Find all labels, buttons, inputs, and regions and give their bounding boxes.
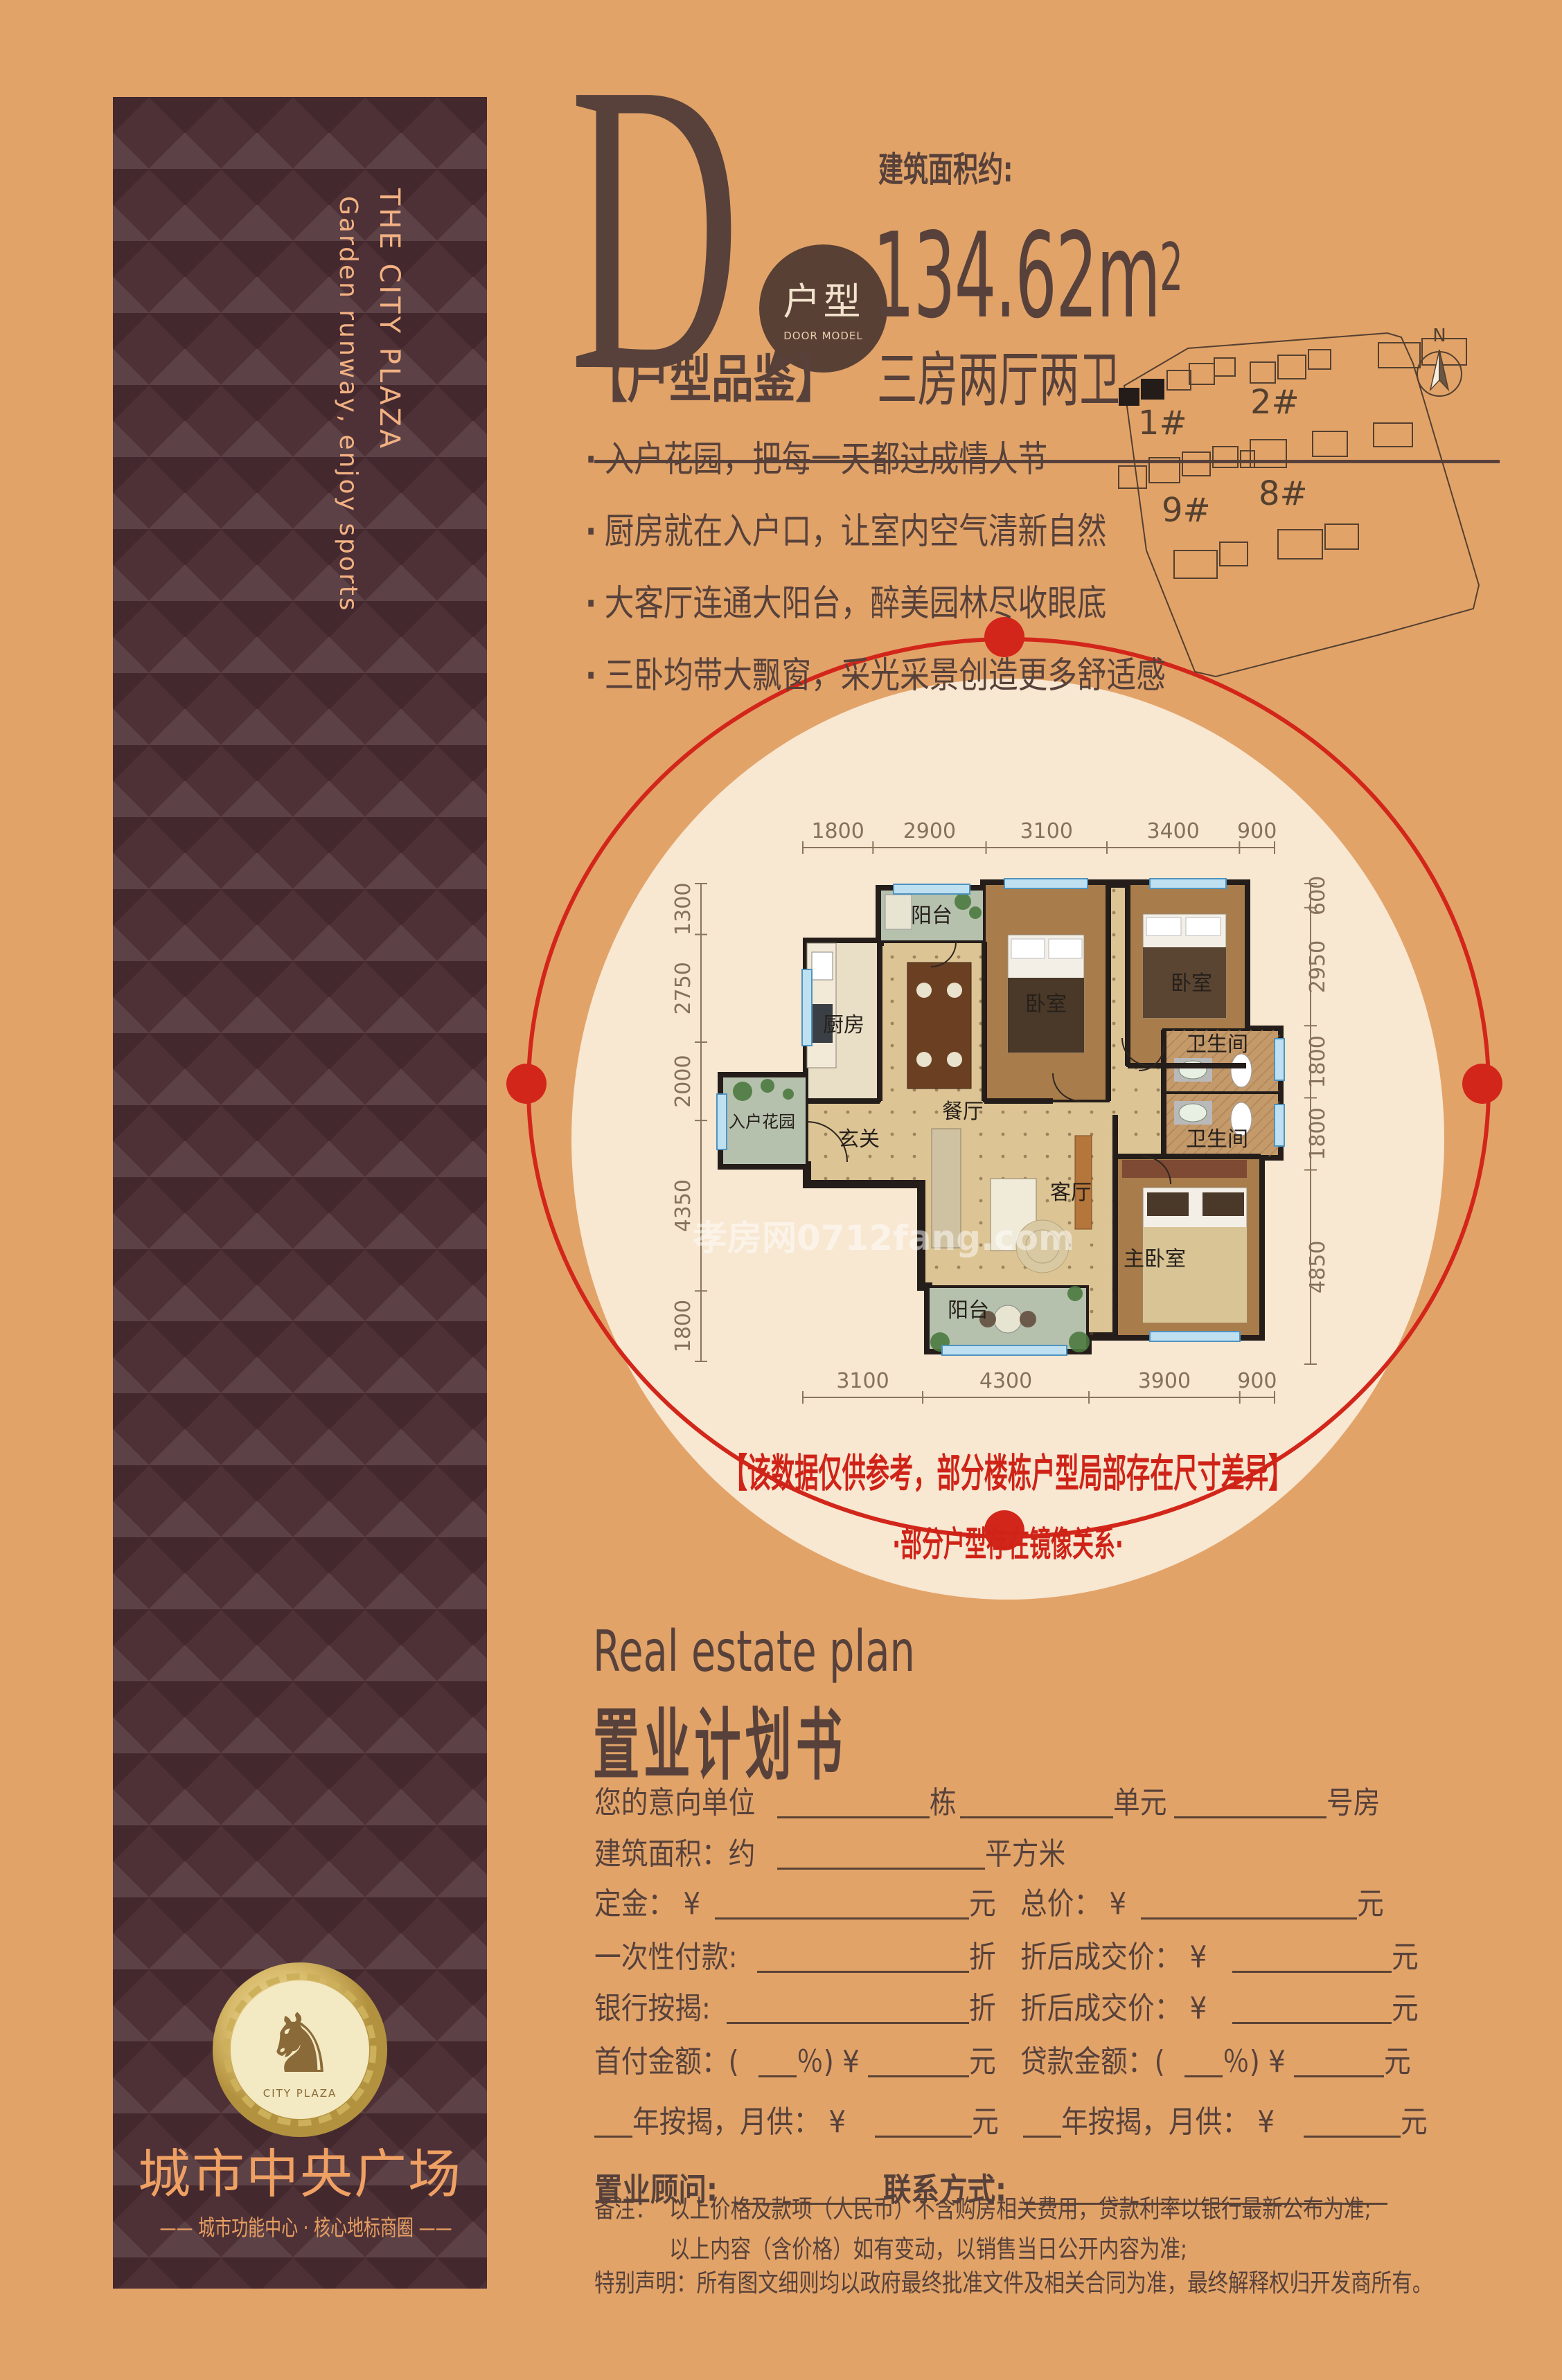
appraisal-bullet: 厨房就在入户口，让室内空气清新自然	[585, 496, 1051, 568]
dim-label: 900	[1237, 1369, 1277, 1393]
label-balcony-top: 阳台	[911, 904, 952, 928]
form-label: 单元	[1113, 1788, 1166, 1818]
form-label: 定金： ¥	[594, 1889, 700, 1920]
form-col: 银行按揭:折	[594, 1994, 1000, 2024]
form-label: 总价： ¥	[1020, 1889, 1126, 1920]
blank-line	[1023, 2108, 1061, 2138]
site-map: 1# 2# 9# 8# N	[1105, 322, 1482, 682]
blank-line	[777, 1840, 985, 1870]
blank-line	[758, 2048, 797, 2077]
form-col: 年按揭，月供： ¥元	[1023, 2107, 1431, 2138]
form-row: 您的意向单位栋单元号房	[594, 1785, 1387, 1818]
special-statement: 特别声明：所有图文细则均以政府最终批准文件及相关合同为准，最终解释权归开发商所有…	[594, 2263, 1390, 2299]
dim-label: 1800	[1306, 1035, 1330, 1088]
dim-label: 2900	[903, 819, 956, 843]
form-row: 定金： ¥元总价： ¥元	[594, 1886, 1387, 1920]
form-row: 年按揭，月供： ¥元年按揭，月供： ¥元	[594, 2104, 1387, 2138]
dim-label: 1300	[671, 883, 695, 936]
ring-dot-left	[506, 1064, 547, 1104]
blank-line	[757, 1943, 969, 1973]
blank-line	[594, 2108, 632, 2138]
form-col: 贷款金额：(％) ¥元	[1020, 2047, 1414, 2077]
blank-line	[777, 1789, 930, 1818]
form-label: 元	[1384, 2047, 1411, 2077]
label-entry: 玄关	[838, 1127, 880, 1152]
building-label-2: 2#	[1250, 383, 1299, 422]
form-label: 您的意向单位	[594, 1788, 755, 1818]
form-label: 贷款金额：(	[1020, 2047, 1165, 2077]
side-banner: ♞ CITY PLAZA	[113, 97, 487, 2289]
dim-label: 1800	[1306, 1107, 1330, 1160]
area-superscript: 2	[1160, 230, 1182, 306]
label-master: 主卧室	[1124, 1247, 1186, 1271]
pegasus-icon: ♞	[263, 1996, 337, 2091]
appraisal-bullet: 大客厅连通大阳台，醉美园林尽收眼底	[585, 568, 1051, 640]
label-living: 客厅	[1050, 1181, 1092, 1205]
logo-caption: CITY PLAZA	[263, 2087, 337, 2100]
blank-line	[727, 1994, 969, 2024]
blank-line	[960, 1789, 1112, 1818]
floor-plan: 阳台 厨房 卧室 卧室 餐厅 玄关 入户花园 卫生间 卫生间 客厅 主卧室 阳台…	[665, 796, 1344, 1433]
pegasus-logo: ♞ CITY PLAZA	[210, 1960, 390, 2140]
form-label: 栋	[930, 1788, 957, 1818]
label-dining: 餐厅	[942, 1100, 984, 1124]
appraisal-list: 入户花园，把每一天都过成情人节厨房就在入户口，让室内空气清新自然大客厅连通大阳台…	[585, 424, 1153, 712]
dim-label: 900	[1237, 819, 1277, 843]
dim-label: 1800	[671, 1300, 695, 1352]
poster-page: ♞ CITY PLAZA THE CITY PLAZA Garden runwa…	[0, 0, 1562, 2380]
form-label: 元	[1401, 2107, 1428, 2138]
building-label-9: 9#	[1162, 491, 1211, 530]
form-label: 年按揭，月供： ¥	[632, 2107, 846, 2138]
dim-label: 2750	[671, 962, 695, 1014]
dim-label: 3400	[1146, 819, 1199, 843]
appraisal-bullet: 三卧均带大飘窗，采光采景创造更多舒适感	[585, 640, 1051, 712]
form-label: 银行按揭:	[594, 1994, 711, 2024]
form-label: 折	[969, 1942, 996, 1973]
brand-subtitle: —— 城市功能中心 · 核心地标商圈 ——	[160, 2210, 441, 2242]
plan-title-cn: 置业计划书	[593, 1683, 846, 1795]
form-col: 总价： ¥元	[1020, 1889, 1387, 1920]
form-label: 元	[1392, 1942, 1419, 1973]
form-row: 建筑面积：约平方米	[594, 1836, 1387, 1870]
form-label: 号房	[1326, 1788, 1380, 1818]
dim-label: 3100	[1020, 819, 1073, 843]
label-entry-garden: 入户花园	[729, 1112, 795, 1131]
notes-label: 备注：	[594, 2190, 656, 2271]
disclaimer-line2: ·部分户型存在镜像关系·	[664, 1516, 1351, 1566]
appraisal-title: 【户型品鉴】	[585, 338, 837, 412]
form-label: 元	[1357, 1889, 1384, 1920]
highlighted-building	[1119, 379, 1164, 406]
blank-line	[868, 2048, 969, 2077]
form-label: 建筑面积：约	[594, 1839, 755, 1870]
form-col: 折后成交价： ¥元	[1020, 1994, 1422, 2024]
building-label-8: 8#	[1259, 474, 1308, 513]
dim-label: 4850	[1306, 1241, 1330, 1294]
form-col: 建筑面积：约平方米	[594, 1839, 1387, 1870]
blank-line	[875, 2108, 972, 2138]
dim-label: 3900	[1138, 1369, 1191, 1393]
form-label: 折后成交价： ¥	[1020, 1942, 1207, 1973]
disclaimer-line1: 【该数据仅供参考，部分楼栋户型局部存在尺寸差异】	[675, 1442, 1340, 1498]
compass-n-label: N	[1432, 325, 1446, 346]
form-col: 折后成交价： ¥元	[1020, 1942, 1422, 1973]
form-col: 您的意向单位栋单元号房	[594, 1788, 1387, 1818]
compass-icon: N	[1417, 325, 1462, 396]
label-bedroom-a: 卧室	[1025, 992, 1067, 1017]
label-bath-a: 卫生间	[1186, 1032, 1248, 1057]
blank-line	[1304, 2108, 1401, 2138]
form-label: 元	[1392, 1994, 1419, 2024]
dim-label: 1800	[811, 819, 864, 843]
blank-line	[1141, 1890, 1357, 1920]
label-balcony-bottom: 阳台	[948, 1298, 989, 1323]
form-label: 元	[969, 2047, 996, 2077]
form-row: 银行按揭:折折后成交价： ¥元	[594, 1991, 1387, 2024]
appraisal-bullet: 入户花园，把每一天都过成情人节	[585, 424, 1051, 496]
form-label: 平方米	[985, 1839, 1065, 1870]
dim-label: 4300	[979, 1369, 1032, 1393]
form-col: 年按揭，月供： ¥元	[594, 2107, 1002, 2138]
dim-label: 2000	[671, 1055, 695, 1107]
plan-title-en: Real estate plan	[593, 1619, 915, 1685]
form-label: 元	[972, 2107, 999, 2138]
form-label: 年按揭，月供： ¥	[1061, 2107, 1275, 2138]
area-label: 建筑面积约:	[878, 142, 1013, 192]
dim-label: 600	[1306, 876, 1330, 915]
bubble-label: 户型	[759, 271, 887, 325]
form-label: 首付金额：(	[594, 2047, 739, 2077]
watermark: 孝房网0712fang.com	[693, 1218, 1074, 1258]
blank-line	[715, 1890, 969, 1920]
dim-label: 4350	[671, 1179, 695, 1232]
brand-name: 城市中央广场	[113, 2131, 487, 2208]
dim-label: 2950	[1306, 940, 1330, 993]
label-bedroom-b: 卧室	[1171, 972, 1212, 996]
label-bath-b: 卫生间	[1186, 1127, 1248, 1152]
building-label-1: 1#	[1138, 404, 1187, 442]
blank-line	[1294, 2048, 1384, 2077]
ring-dot-right	[1462, 1064, 1502, 1104]
form-label: ％) ¥	[1223, 2047, 1286, 2077]
form-label: 折后成交价： ¥	[1020, 1994, 1207, 2024]
form-row: 首付金额：(％) ¥元贷款金额：(％) ¥元	[594, 2044, 1387, 2077]
banner-english-title: THE CITY PLAZA	[373, 188, 405, 451]
form-label: 折	[969, 1994, 996, 2024]
form-col: 一次性付款:折	[594, 1942, 1000, 1973]
form-col: 定金： ¥元	[594, 1889, 1000, 1920]
form-label: 元	[969, 1889, 996, 1920]
form-row: 一次性付款:折折后成交价： ¥元	[594, 1940, 1387, 1973]
blank-line	[1184, 2048, 1223, 2077]
label-kitchen: 厨房	[823, 1013, 864, 1037]
form-label: ％) ¥	[797, 2047, 860, 2077]
notes-block: 备注： 以上价格及款项（人民币）不含购房相关费用，贷款利率以银行最新公布为准; …	[594, 2190, 1536, 2271]
layout-description: 三房两厅两卫	[877, 331, 1120, 418]
blank-line	[1232, 1943, 1392, 1973]
form-col: 首付金额：(％) ¥元	[594, 2047, 1000, 2077]
blank-line	[1174, 1789, 1326, 1818]
blank-line	[1232, 1994, 1392, 2024]
notes-line1: 以上价格及款项（人民币）不含购房相关费用，贷款利率以银行最新公布为准;	[669, 2190, 1372, 2230]
banner-english-slogan: Garden runway, enjoy sports	[334, 196, 362, 613]
dim-label: 3100	[836, 1369, 889, 1393]
form-label: 一次性付款:	[594, 1942, 738, 1973]
purchase-form: 您的意向单位栋单元号房建筑面积：约平方米定金： ¥元总价： ¥元一次性付款:折折…	[594, 1785, 1387, 2205]
